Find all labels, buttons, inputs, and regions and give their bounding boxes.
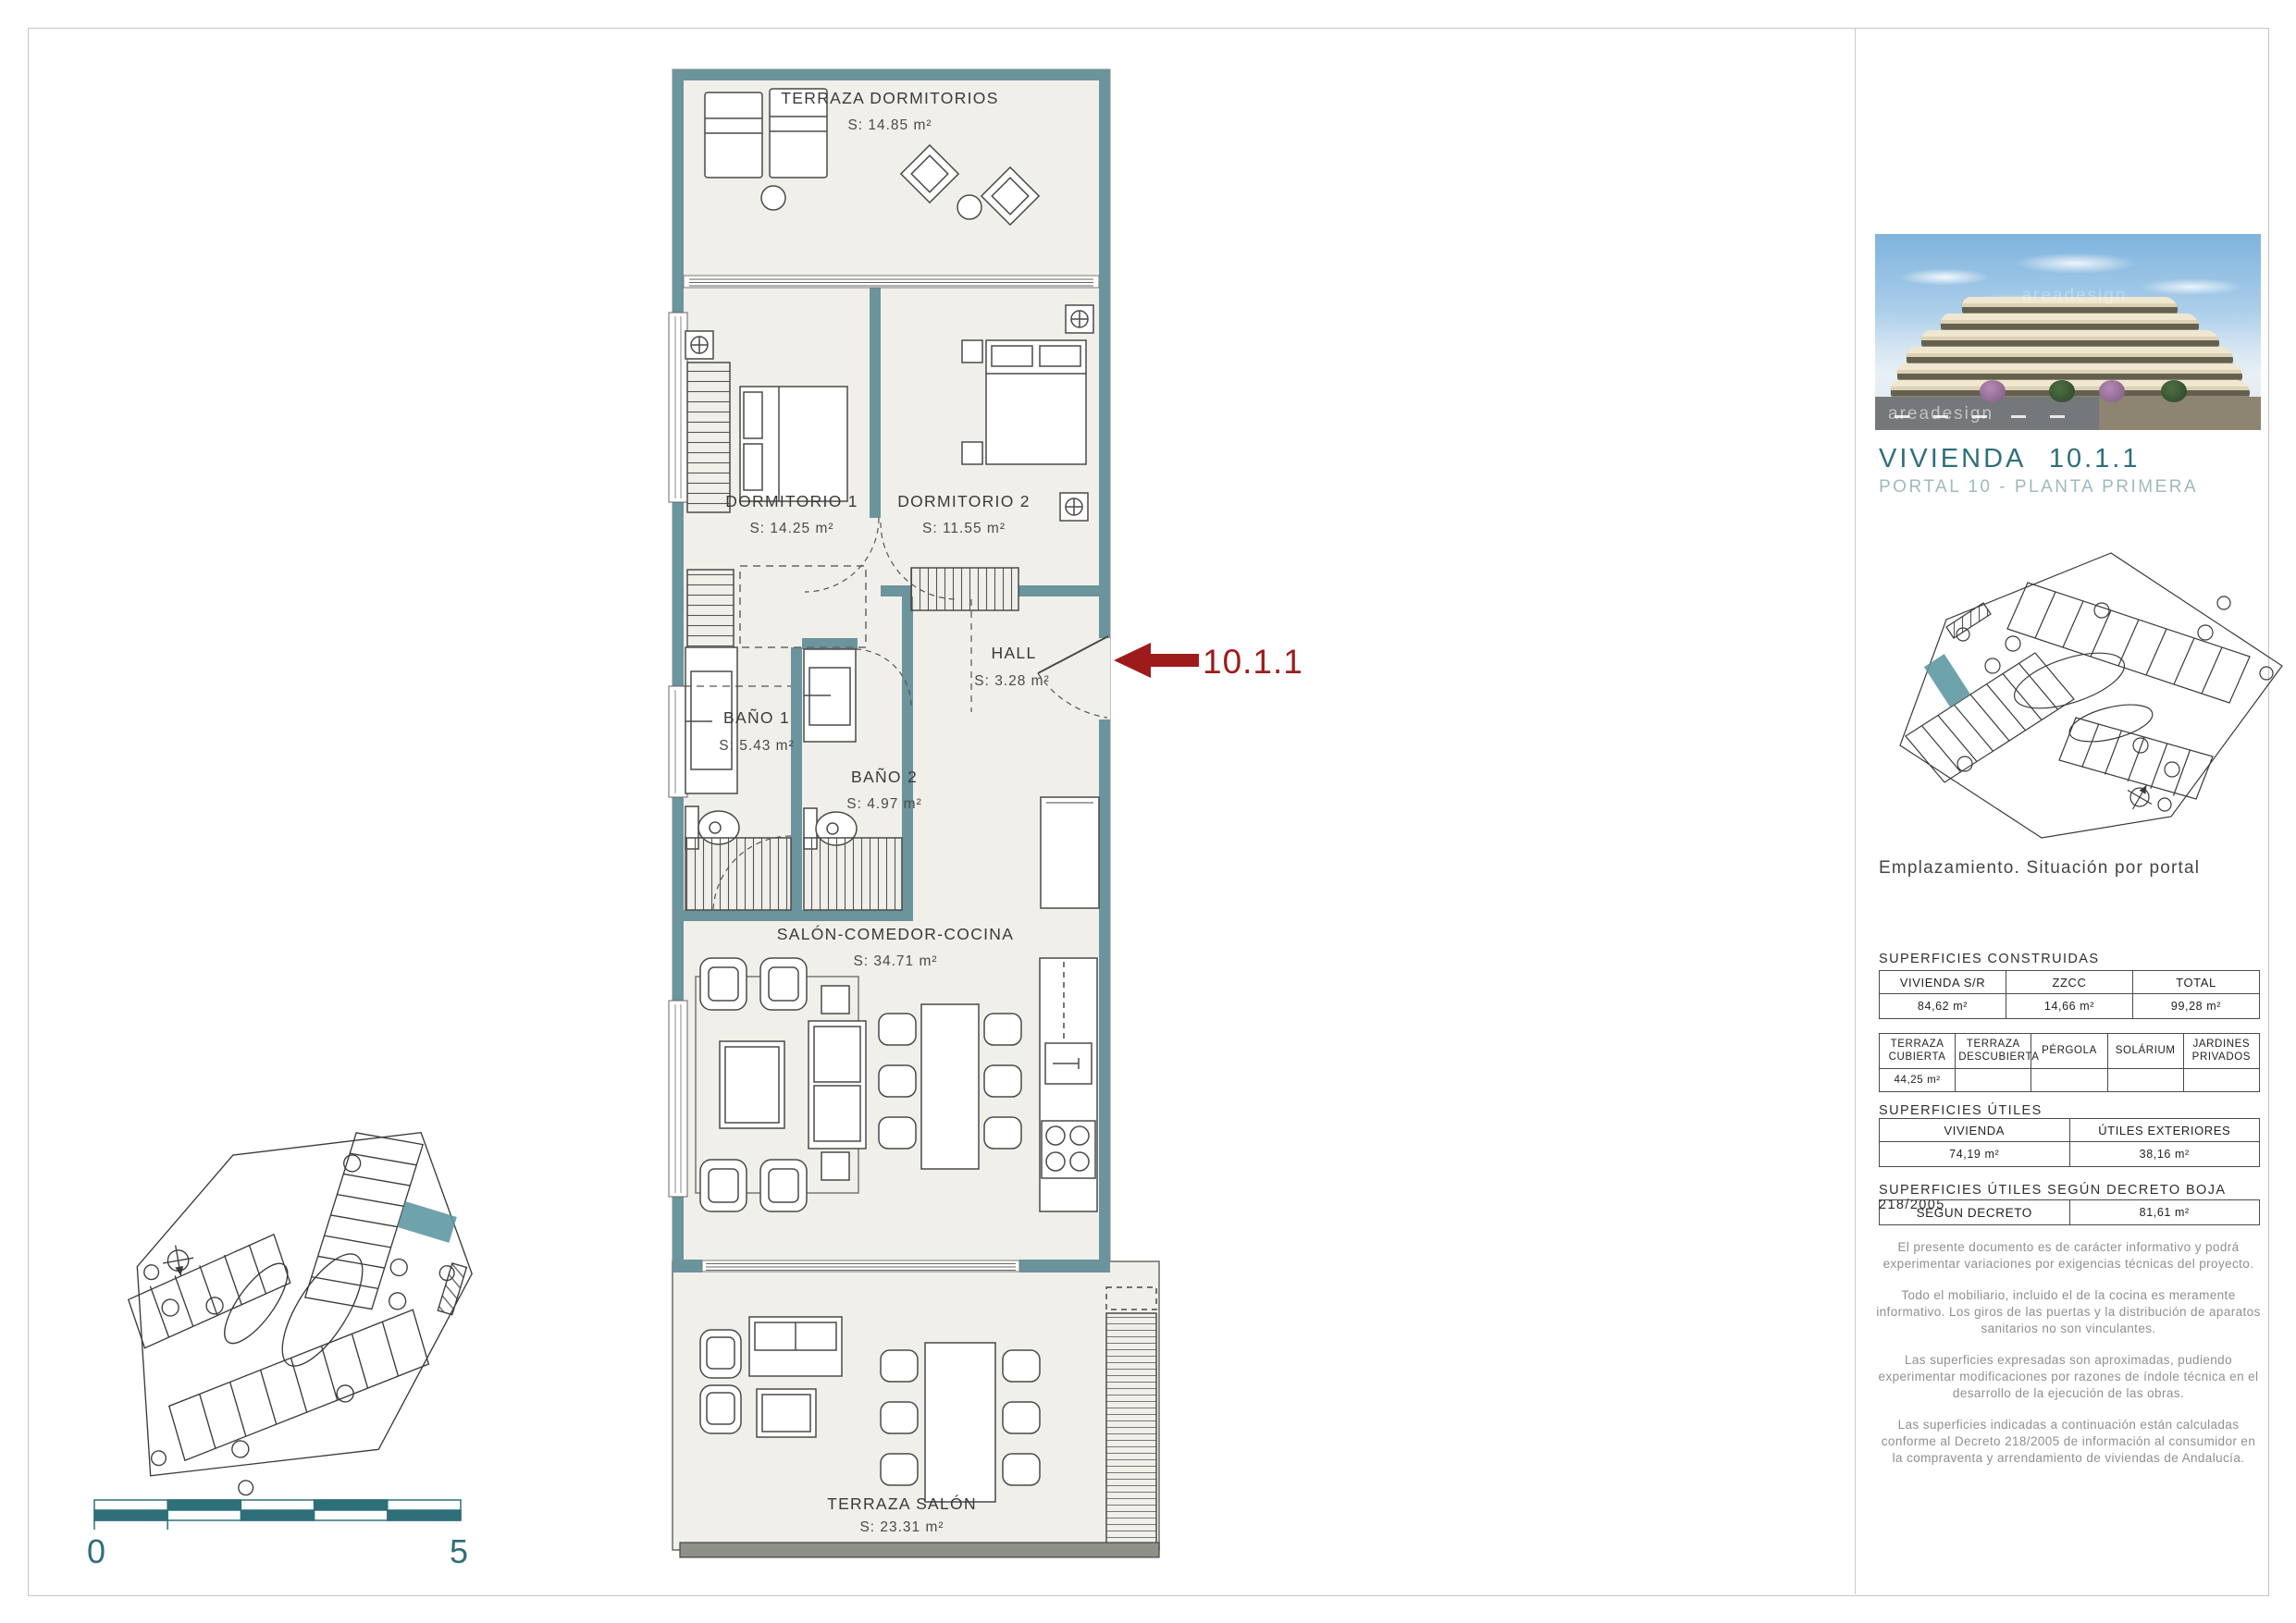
- photo-tree: [2099, 380, 2125, 402]
- apartment-plan: 10.1.1 TERRAZA DORMITORIOS S: 14.85 m² D…: [669, 69, 1303, 1557]
- area-salon: S: 34.71 m²: [853, 953, 937, 969]
- photo-watermark: areadesign: [2021, 286, 2127, 306]
- area-bano-2: S: 4.97 m²: [846, 796, 922, 812]
- th-total: TOTAL: [2133, 971, 2260, 994]
- photo-tree: [1980, 380, 2006, 402]
- legal-notes: El presente documento es de carácter inf…: [1876, 1239, 2261, 1481]
- kitchen-counter: [1040, 958, 1097, 1211]
- table-constructed: VIVIENDA S/R ZZCC TOTAL 84,62 m² 14,66 m…: [1879, 970, 2260, 1019]
- label-terraza-dormitorios: TERRAZA DORMITORIOS: [781, 89, 998, 107]
- th-useful-vivienda: VIVIENDA: [1880, 1119, 2070, 1142]
- td-terraza-descubierta: [1956, 1069, 2031, 1092]
- td-terraza-cubierta: 44,25 m²: [1880, 1069, 1956, 1092]
- site-plan-bottom-left: [27, 1053, 560, 1573]
- th-jardines: JARDINES PRIVADOS: [2183, 1034, 2259, 1069]
- label-hall: HALL: [992, 644, 1037, 662]
- table-decree: SEGUN DECRETO 81,61 m²: [1879, 1199, 2260, 1225]
- legal-note: El presente documento es de carácter inf…: [1876, 1239, 2261, 1273]
- label-salon: SALÓN-COMEDOR-COCINA: [777, 924, 1014, 943]
- label-bano-1: BAÑO 1: [723, 707, 790, 727]
- th-terraza-cubierta: TERRAZA CUBIERTA: [1880, 1034, 1956, 1069]
- th-pergola: PÉRGOLA: [2031, 1034, 2107, 1069]
- legal-note: Las superficies expresadas son aproximad…: [1876, 1352, 2261, 1402]
- unit-title-label: VIVIENDA: [1879, 444, 2026, 473]
- td-pergola: [2031, 1069, 2107, 1092]
- area-bano-1: S: 5.43 m²: [719, 738, 795, 754]
- label-dormitorio-2: DORMITORIO 2: [897, 492, 1031, 510]
- area-dormitorio-1: S: 14.25 m²: [749, 521, 833, 536]
- section-constructed: SUPERFICIES CONSTRUIDAS: [1879, 952, 2099, 966]
- photo-tree: [2161, 380, 2187, 402]
- legal-note: Todo el mobiliario, incluido el de la co…: [1876, 1287, 2261, 1337]
- area-terraza-dormitorios: S: 14.85 m²: [847, 117, 932, 133]
- building-band: [1897, 363, 2241, 382]
- entry-arrow-label: 10.1.1: [1203, 643, 1303, 681]
- unit-title: VIVIENDA 10.1.1: [1879, 444, 2140, 474]
- th-terraza-descubierta: TERRAZA DESCUBIERTA: [1956, 1034, 2031, 1069]
- td-segun-decreto: 81,61 m²: [2069, 1200, 2260, 1225]
- th-vivienda-sr: VIVIENDA S/R: [1880, 971, 2006, 994]
- building-photo: areadesign areadesign: [1875, 234, 2261, 430]
- table-terraces: TERRAZA CUBIERTA TERRAZA DESCUBIERTA PÉR…: [1879, 1033, 2260, 1092]
- photo-tree: [2049, 380, 2075, 402]
- photo-watermark: areadesign: [1888, 404, 1994, 424]
- area-hall: S: 3.28 m²: [974, 673, 1050, 689]
- siteplan-caption: Emplazamiento. Situación por portal: [1879, 858, 2200, 879]
- scale-bar: 0 5: [87, 1500, 468, 1570]
- td-useful-exteriores: 38,16 m²: [2069, 1142, 2260, 1167]
- td-jardines: [2183, 1069, 2259, 1092]
- th-segun-decreto: SEGUN DECRETO: [1880, 1200, 2070, 1225]
- label-dormitorio-1: DORMITORIO 1: [725, 492, 858, 510]
- building-band: [1907, 347, 2233, 365]
- area-dormitorio-2: S: 11.55 m²: [922, 521, 1006, 536]
- legal-note: Las superficies indicadas a continuación…: [1876, 1417, 2261, 1467]
- area-terraza-salon: S: 23.31 m²: [859, 1519, 944, 1535]
- building-band: [1921, 330, 2219, 349]
- td-useful-vivienda: 74,19 m²: [1880, 1142, 2070, 1167]
- table-useful: VIVIENDA ÚTILES EXTERIORES 74,19 m² 38,1…: [1879, 1118, 2260, 1167]
- scale-max: 5: [450, 1532, 468, 1570]
- label-bano-2: BAÑO 2: [851, 767, 918, 786]
- scale-min: 0: [87, 1532, 105, 1570]
- section-useful: SUPERFICIES ÚTILES: [1879, 1103, 2043, 1118]
- label-terraza-salon: TERRAZA SALÓN: [827, 1494, 977, 1513]
- td-vivienda-sr: 84,62 m²: [1880, 994, 2006, 1019]
- building-band: [1941, 314, 2199, 332]
- th-zzcc: ZZCC: [2006, 971, 2133, 994]
- th-solarium: SOLÁRIUM: [2107, 1034, 2183, 1069]
- entry-arrow: 10.1.1: [1114, 643, 1303, 681]
- info-panel: areadesign areadesign VIVIENDA 10.1.1 PO…: [1855, 28, 2270, 1594]
- unit-number: 10.1.1: [2049, 444, 2141, 473]
- td-total: 99,28 m²: [2133, 994, 2260, 1019]
- td-zzcc: 14,66 m²: [2006, 994, 2133, 1019]
- unit-subtitle: PORTAL 10 - PLANTA PRIMERA: [1879, 477, 2198, 498]
- th-useful-exteriores: ÚTILES EXTERIORES: [2069, 1119, 2260, 1142]
- td-solarium: [2107, 1069, 2183, 1092]
